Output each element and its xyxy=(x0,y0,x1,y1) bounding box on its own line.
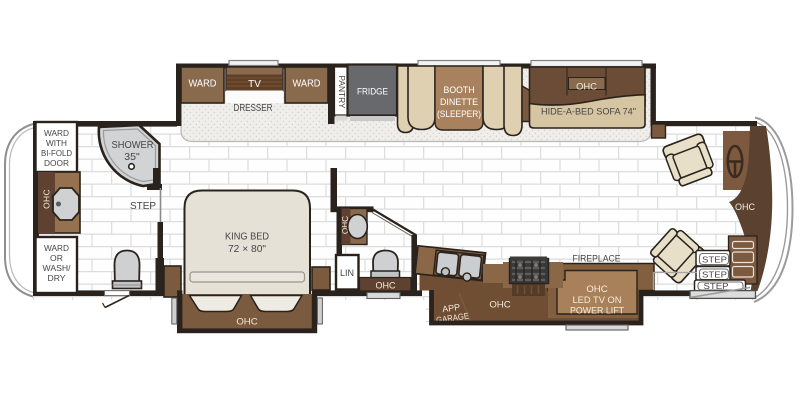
svg-text:OHC: OHC xyxy=(586,284,607,295)
svg-text:STEP: STEP xyxy=(130,201,156,212)
svg-text:BOOTH: BOOTH xyxy=(444,85,475,95)
svg-text:OHC: OHC xyxy=(735,202,756,212)
svg-text:(SLEEPER): (SLEEPER) xyxy=(437,109,481,119)
svg-text:OHC: OHC xyxy=(376,281,397,291)
svg-text:TV: TV xyxy=(248,79,261,90)
svg-text:DOOR: DOOR xyxy=(44,158,69,168)
svg-text:STEP: STEP xyxy=(702,256,727,265)
svg-text:POWER LIFT: POWER LIFT xyxy=(570,306,624,317)
svg-text:FRIDGE: FRIDGE xyxy=(357,87,388,98)
svg-text:WARD: WARD xyxy=(44,243,69,253)
svg-text:35": 35" xyxy=(124,151,140,163)
svg-text:OHC: OHC xyxy=(236,317,257,328)
svg-text:OHC: OHC xyxy=(489,300,510,311)
svg-text:WARD: WARD xyxy=(44,128,69,138)
svg-text:WITH: WITH xyxy=(46,138,67,148)
svg-text:OHC: OHC xyxy=(576,81,597,92)
svg-text:DRY: DRY xyxy=(48,273,66,283)
svg-text:BI-FOLD: BI-FOLD xyxy=(41,148,72,158)
svg-text:SHOWER: SHOWER xyxy=(112,140,154,151)
svg-text:LED TV ON: LED TV ON xyxy=(573,295,622,306)
svg-text:DRESSER: DRESSER xyxy=(234,103,273,114)
svg-text:STEP: STEP xyxy=(704,282,729,291)
svg-text:OR: OR xyxy=(50,253,63,263)
svg-text:KING BED: KING BED xyxy=(225,232,269,243)
svg-text:OHC: OHC xyxy=(42,189,52,209)
svg-text:FIREPLACE: FIREPLACE xyxy=(573,254,621,264)
svg-text:STEP: STEP xyxy=(702,271,727,280)
svg-text:PANTRY: PANTRY xyxy=(337,75,347,109)
svg-text:72 × 80": 72 × 80" xyxy=(228,244,266,255)
svg-text:WASH/: WASH/ xyxy=(43,263,72,273)
svg-text:WARD: WARD xyxy=(189,79,217,90)
svg-text:HIDE-A-BED SOFA 74": HIDE-A-BED SOFA 74" xyxy=(541,107,636,117)
svg-text:WARD: WARD xyxy=(293,79,321,90)
svg-text:DINETTE: DINETTE xyxy=(440,97,478,107)
svg-text:LIN: LIN xyxy=(340,268,354,278)
